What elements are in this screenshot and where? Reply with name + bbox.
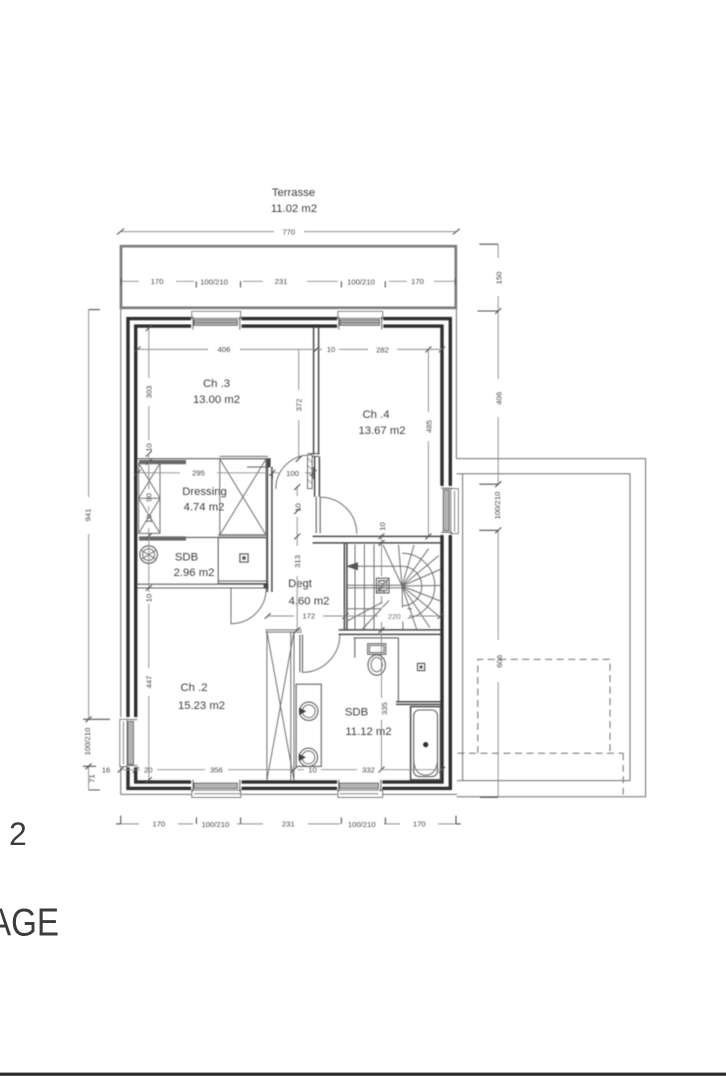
- svg-text:20: 20: [144, 765, 153, 774]
- svg-text:313: 313: [293, 555, 302, 568]
- svg-text:172: 172: [302, 612, 315, 621]
- svg-text:AGE: AGE: [0, 902, 59, 945]
- svg-text:90: 90: [145, 493, 154, 502]
- svg-text:231: 231: [282, 820, 295, 829]
- svg-text:2: 2: [9, 816, 27, 852]
- svg-text:Ch .3: Ch .3: [203, 378, 230, 390]
- svg-text:4.60 m2: 4.60 m2: [289, 596, 330, 608]
- svg-text:295: 295: [192, 469, 205, 478]
- svg-text:10: 10: [145, 594, 154, 603]
- svg-text:Ch .4: Ch .4: [362, 409, 389, 421]
- svg-text:170: 170: [413, 820, 426, 829]
- svg-text:280: 280: [378, 580, 387, 593]
- svg-text:406: 406: [218, 345, 231, 354]
- svg-text:Ch .2: Ch .2: [180, 682, 207, 694]
- svg-text:170: 170: [152, 820, 165, 829]
- svg-text:16: 16: [102, 765, 111, 774]
- svg-text:4.74 m2: 4.74 m2: [184, 502, 225, 514]
- svg-text:Degt: Degt: [288, 578, 313, 590]
- svg-text:71: 71: [88, 774, 97, 783]
- svg-text:10: 10: [327, 345, 336, 354]
- svg-text:282: 282: [376, 346, 389, 355]
- svg-text:231: 231: [275, 277, 288, 286]
- svg-text:100/210: 100/210: [202, 820, 230, 829]
- svg-text:10: 10: [293, 503, 302, 512]
- svg-text:335: 335: [380, 702, 389, 715]
- svg-text:11.02 m2: 11.02 m2: [271, 203, 317, 215]
- svg-text:100/210: 100/210: [347, 278, 375, 287]
- svg-text:356: 356: [210, 765, 223, 774]
- svg-text:100/210: 100/210: [493, 492, 502, 520]
- svg-text:10: 10: [145, 515, 154, 524]
- svg-text:485: 485: [425, 420, 434, 433]
- svg-text:100/210: 100/210: [200, 278, 228, 287]
- svg-text:220: 220: [388, 612, 401, 621]
- svg-text:10: 10: [145, 443, 154, 452]
- svg-text:447: 447: [145, 676, 154, 689]
- svg-text:606: 606: [495, 655, 504, 668]
- svg-text:SDB: SDB: [345, 707, 368, 719]
- svg-text:150: 150: [494, 272, 503, 285]
- svg-text:332: 332: [362, 765, 375, 774]
- svg-text:100/210: 100/210: [348, 820, 376, 829]
- svg-text:2.96 m2: 2.96 m2: [174, 567, 215, 579]
- svg-text:13.00 m2: 13.00 m2: [193, 394, 240, 406]
- svg-text:15.23 m2: 15.23 m2: [178, 700, 225, 712]
- svg-text:941: 941: [84, 509, 93, 522]
- svg-text:303: 303: [145, 386, 154, 399]
- svg-text:13.67 m2: 13.67 m2: [358, 425, 405, 437]
- svg-text:100/210: 100/210: [83, 728, 92, 756]
- svg-text:11.12 m2: 11.12 m2: [345, 726, 391, 738]
- svg-text:10: 10: [378, 522, 387, 531]
- svg-text:10: 10: [308, 765, 317, 774]
- svg-text:372: 372: [295, 399, 304, 412]
- svg-text:406: 406: [494, 392, 503, 405]
- svg-text:Terrasse: Terrasse: [272, 187, 315, 199]
- svg-text:770: 770: [282, 227, 295, 236]
- svg-text:100: 100: [286, 469, 299, 478]
- svg-text:170: 170: [411, 277, 424, 286]
- svg-text:170: 170: [151, 277, 164, 286]
- svg-text:SDB: SDB: [175, 552, 198, 564]
